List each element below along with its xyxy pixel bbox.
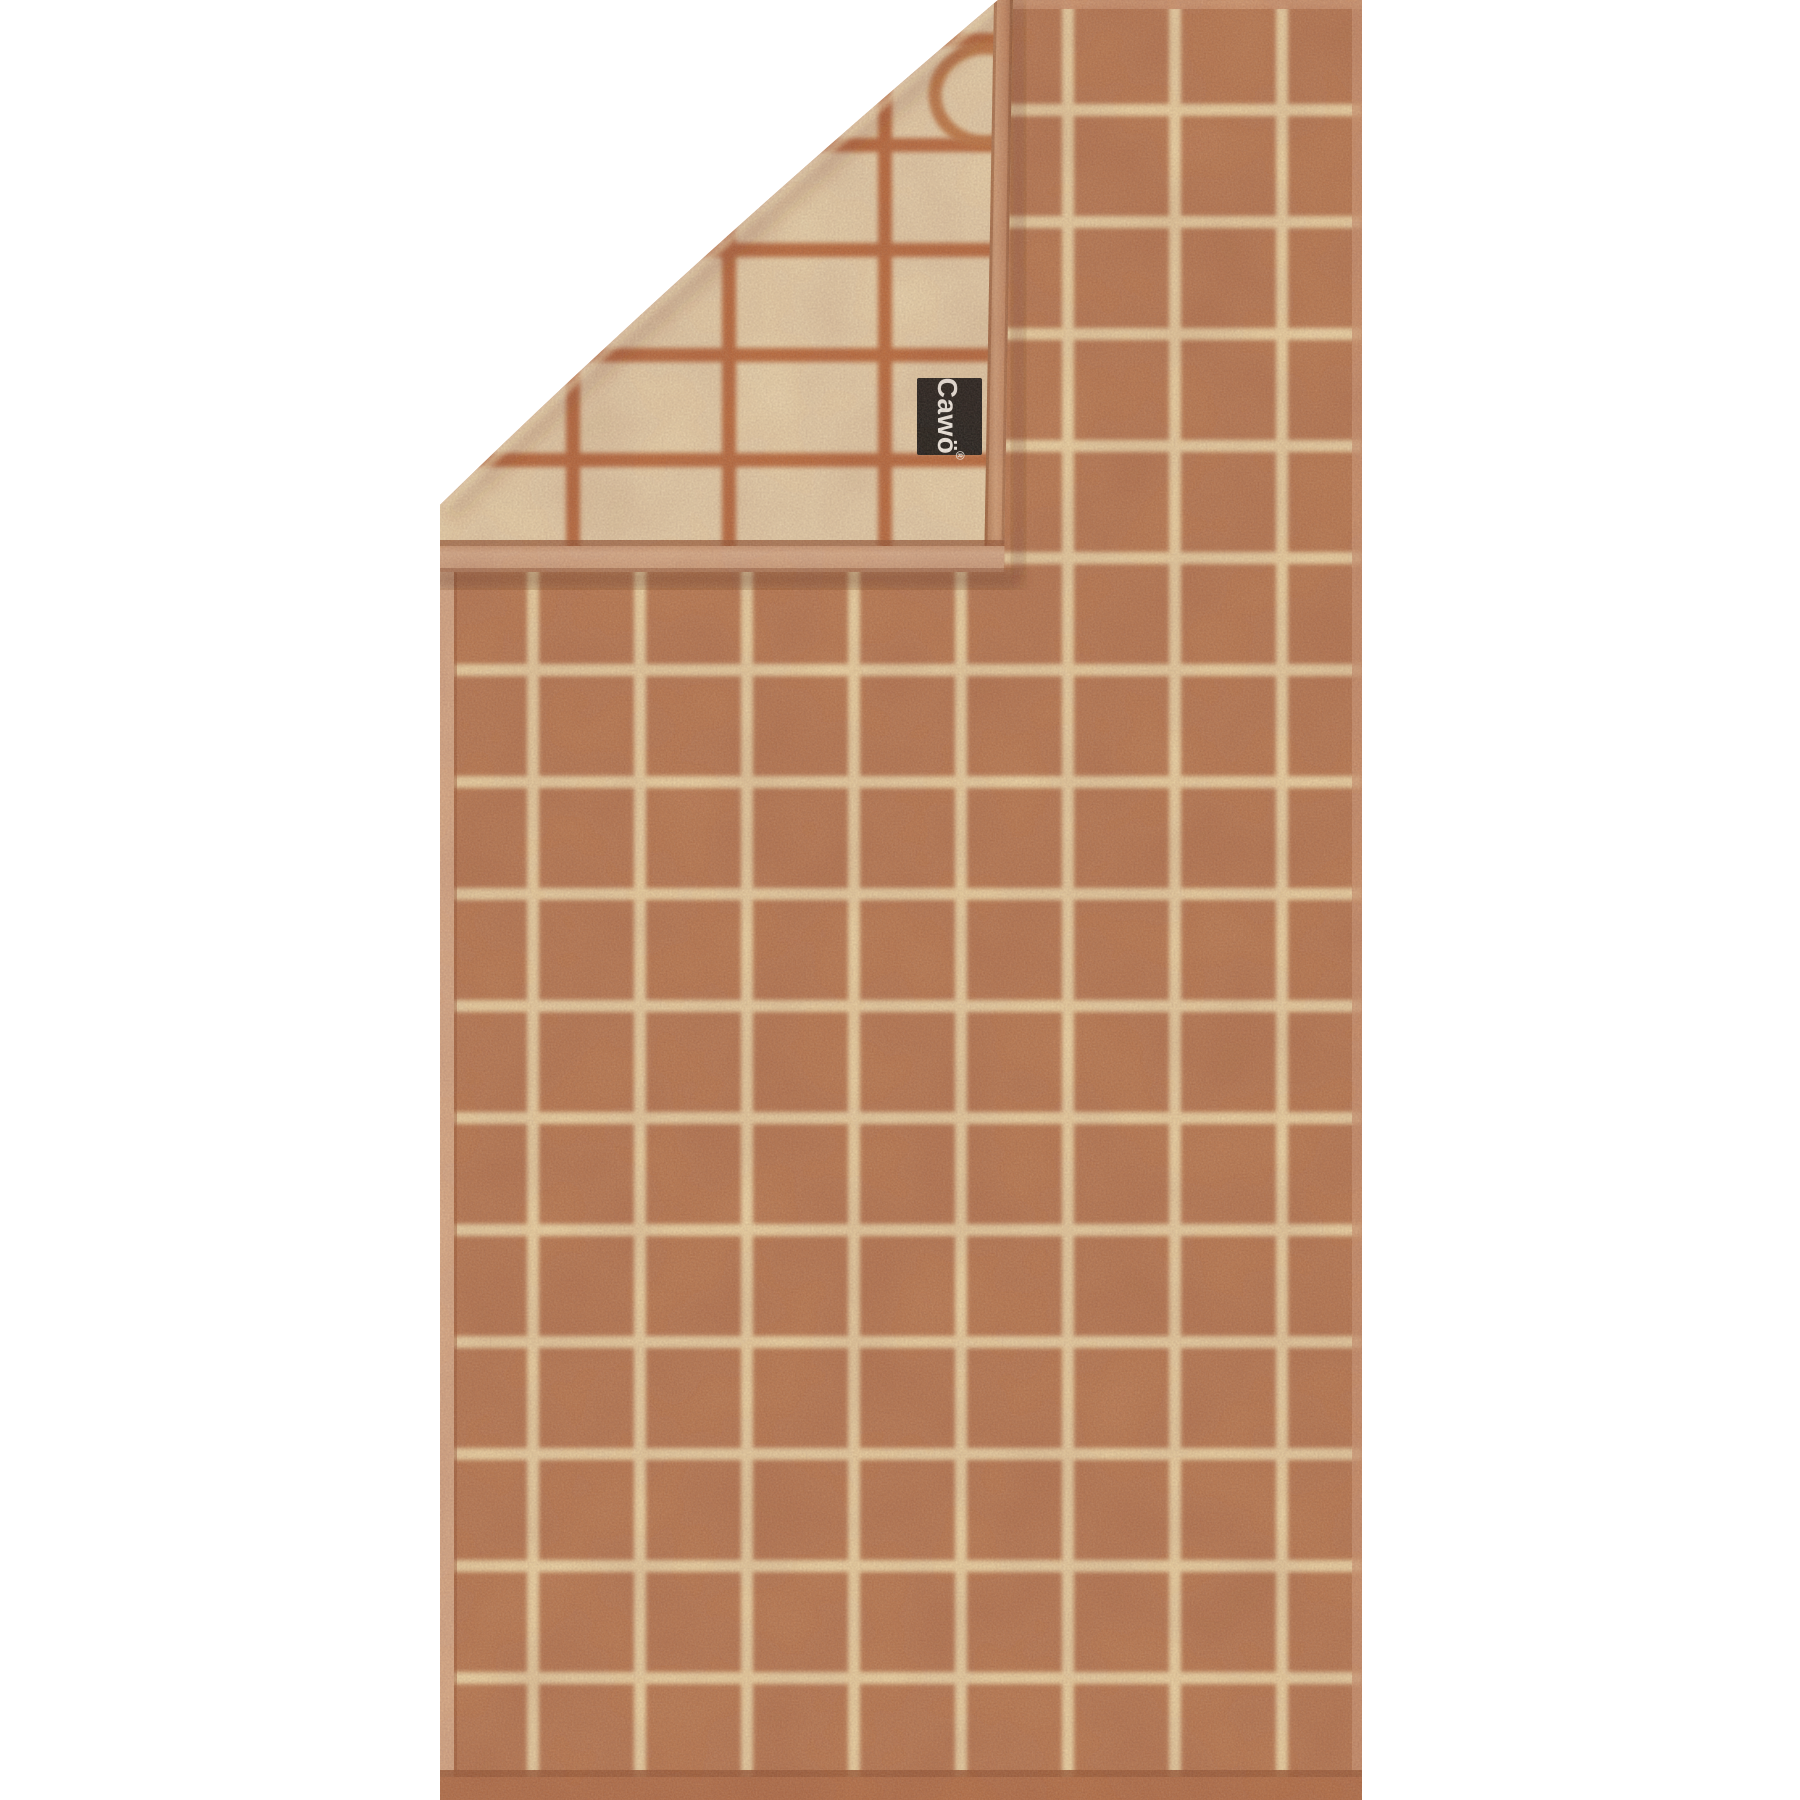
product-photo: Cawö ® [0, 0, 1800, 1800]
towel-product-image: Cawö ® [0, 0, 1800, 1800]
